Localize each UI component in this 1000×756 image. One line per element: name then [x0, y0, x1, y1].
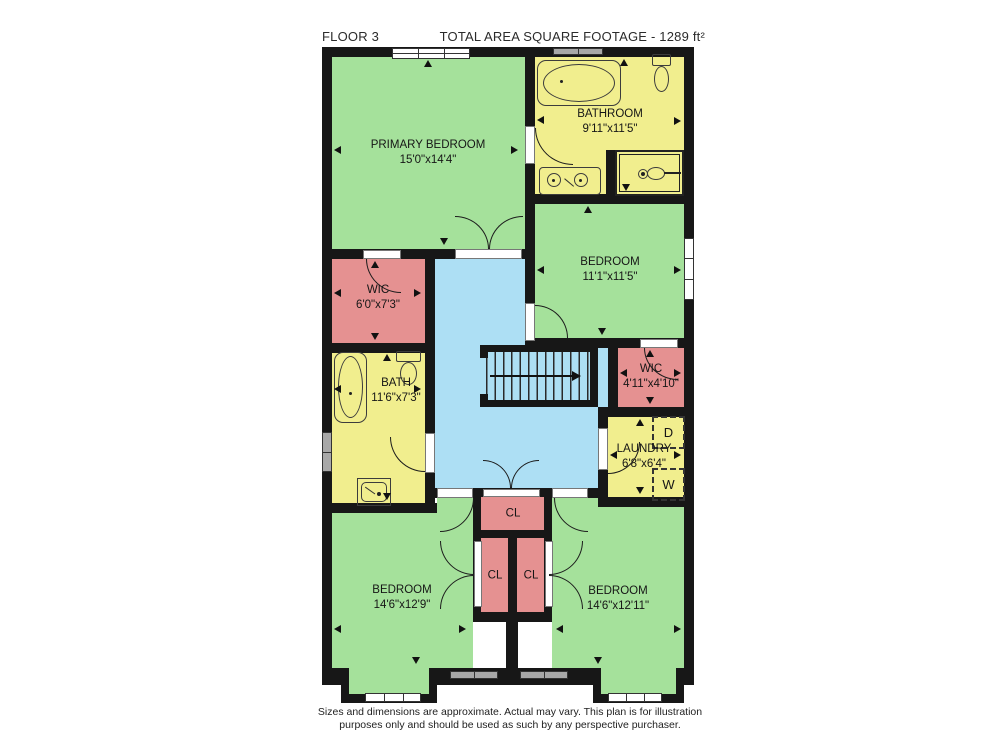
room-name: BEDROOM: [372, 583, 431, 598]
door-jamb: [552, 488, 588, 498]
dimension-marker: [646, 397, 654, 404]
room-name: CL: [488, 569, 503, 584]
room-name: CL: [524, 569, 539, 584]
dimension-marker: [334, 625, 341, 633]
window-mullion: [685, 258, 693, 259]
room-label-closet-right: CL: [524, 569, 539, 584]
dimension-marker: [537, 116, 544, 124]
window-mullion: [474, 672, 475, 678]
window-mullion: [403, 694, 404, 701]
door-jamb: [474, 541, 482, 607]
room-name: CL: [506, 507, 521, 522]
window-icon: [684, 238, 694, 300]
room-label-wic-left: WIC 6'0"x7'3": [356, 283, 400, 313]
window-icon: [322, 432, 332, 472]
washer-label: W: [662, 477, 674, 492]
dimension-marker: [622, 184, 630, 191]
door-jamb: [455, 249, 522, 259]
room-dimensions: 15'0"x14'4": [371, 153, 486, 168]
window-mullion: [393, 53, 469, 54]
dimension-marker: [334, 146, 341, 154]
wall-segment: [322, 47, 332, 685]
room-dimensions: 6'8"x6'4": [617, 457, 672, 472]
window-mullion: [626, 694, 627, 701]
wall-segment: [506, 622, 518, 668]
room-dimensions: 6'0"x7'3": [356, 298, 400, 313]
floor-plan-page: { "header": { "floor_label": "FLOOR 3", …: [0, 0, 1000, 756]
door-jamb: [525, 303, 535, 341]
door-jamb: [525, 126, 535, 164]
shower-sprayer: [647, 167, 665, 180]
sink-drain: [579, 179, 582, 182]
window-mullion: [685, 279, 693, 280]
room-label-laundry: LAUNDRY 6'8"x6'4": [617, 442, 672, 472]
door-jamb: [425, 433, 435, 473]
sink-drain: [552, 179, 555, 182]
room-dimensions: 11'6"x7'3": [371, 391, 420, 406]
bathtub-drain: [560, 80, 563, 83]
door-jamb: [483, 489, 540, 497]
room-label-closet-left: CL: [488, 569, 503, 584]
room-dimensions: 11'1"x11'5": [580, 270, 639, 285]
bay-window-floor-right: [601, 660, 676, 694]
window-icon: [392, 48, 470, 59]
stairs-direction-arrow: [490, 375, 574, 377]
room-label-closet-top: CL: [506, 507, 521, 522]
dryer-label: D: [664, 425, 673, 440]
window-icon: [553, 48, 603, 55]
window-icon: [608, 693, 662, 702]
stair-wall-cap: [480, 345, 488, 358]
toilet-bowl: [654, 66, 669, 92]
room-label-bedroom-upper: BEDROOM 11'1"x11'5": [580, 255, 639, 285]
dimension-marker: [636, 419, 644, 426]
washer-box: W: [652, 468, 685, 501]
wall-segment: [322, 47, 694, 57]
dimension-marker: [598, 328, 606, 335]
room-name: LAUNDRY: [617, 442, 672, 457]
dimension-marker: [674, 266, 681, 274]
door-jamb: [640, 339, 678, 348]
wall-segment: [684, 47, 694, 685]
room-name: BEDROOM: [587, 584, 649, 599]
bathtub-basin: [543, 64, 615, 102]
bathtub-basin: [338, 356, 363, 418]
room-label-primary-bedroom: PRIMARY BEDROOM 15'0"x14'4": [371, 138, 486, 168]
door-jamb: [363, 250, 401, 259]
room-name: WIC: [356, 283, 400, 298]
toilet-icon: [396, 351, 421, 362]
dimension-marker: [414, 289, 421, 297]
room-label-bathroom: BATHROOM 9'11"x11'5": [577, 107, 643, 137]
window-mullion: [544, 672, 545, 678]
disclaimer-line-2: purposes only and should be used as such…: [10, 719, 1000, 731]
bay-window-floor-left: [349, 660, 429, 694]
room-dimensions: 4'11"x4'10": [623, 377, 679, 392]
room-label-bedroom-bottom-right: BEDROOM 14'6"x12'11": [587, 584, 649, 614]
hallway-upper: [435, 259, 525, 348]
dimension-marker: [371, 333, 379, 340]
wall-segment: [425, 249, 435, 353]
dimension-marker: [440, 238, 448, 245]
shower-arm: [664, 172, 681, 174]
room-name: WIC: [623, 362, 679, 377]
window-icon: [520, 671, 568, 679]
room-name: PRIMARY BEDROOM: [371, 138, 486, 153]
dimension-marker: [556, 625, 563, 633]
dimension-marker: [511, 146, 518, 154]
dimension-marker: [674, 451, 681, 459]
dimension-marker: [537, 266, 544, 274]
room-dimensions: 9'11"x11'5": [577, 122, 643, 137]
dimension-marker: [594, 657, 602, 664]
disclaimer-line-1: Sizes and dimensions are approximate. Ac…: [10, 706, 1000, 718]
room-label-bath: BATH 11'6"x7'3": [371, 376, 420, 406]
wall-segment: [608, 348, 618, 409]
bathtub-drain: [349, 392, 352, 395]
dimension-marker: [383, 493, 391, 500]
room-name: BATH: [371, 376, 420, 391]
shower-head-dot: [641, 172, 645, 176]
door-jamb: [437, 488, 473, 498]
room-label-bedroom-bottom-left: BEDROOM 14'6"x12'9": [372, 583, 431, 613]
dimension-marker: [674, 117, 681, 125]
door-jamb: [598, 428, 608, 470]
window-mullion: [323, 452, 331, 453]
dimension-marker: [334, 385, 341, 393]
dimension-marker: [383, 354, 391, 361]
dimension-marker: [371, 261, 379, 268]
room-label-wic-right: WIC 4'11"x4'10": [623, 362, 679, 392]
dimension-marker: [646, 350, 654, 357]
wall-segment: [606, 150, 615, 196]
dimension-marker: [459, 625, 466, 633]
window-mullion: [644, 694, 645, 701]
dimension-marker: [584, 206, 592, 213]
room-dimensions: 14'6"x12'11": [587, 599, 649, 614]
dimension-marker: [674, 625, 681, 633]
stairs-arrow-head-icon: [572, 371, 581, 381]
sink-drain: [377, 492, 381, 496]
window-icon: [450, 671, 498, 679]
window-mullion: [578, 49, 579, 54]
room-name: BEDROOM: [580, 255, 639, 270]
room-name: BATHROOM: [577, 107, 643, 122]
dimension-marker: [424, 60, 432, 67]
dimension-marker: [334, 289, 341, 297]
dimension-marker: [636, 487, 644, 494]
total-area-label: TOTAL AREA SQUARE FOOTAGE - 1289 ft²: [300, 29, 705, 44]
window-icon: [365, 693, 421, 702]
toilet-icon: [652, 54, 671, 66]
room-dimensions: 14'6"x12'9": [372, 598, 431, 613]
dimension-marker: [620, 59, 628, 66]
stair-wall-cap: [480, 394, 488, 407]
dimension-marker: [412, 657, 420, 664]
window-mullion: [384, 694, 385, 701]
